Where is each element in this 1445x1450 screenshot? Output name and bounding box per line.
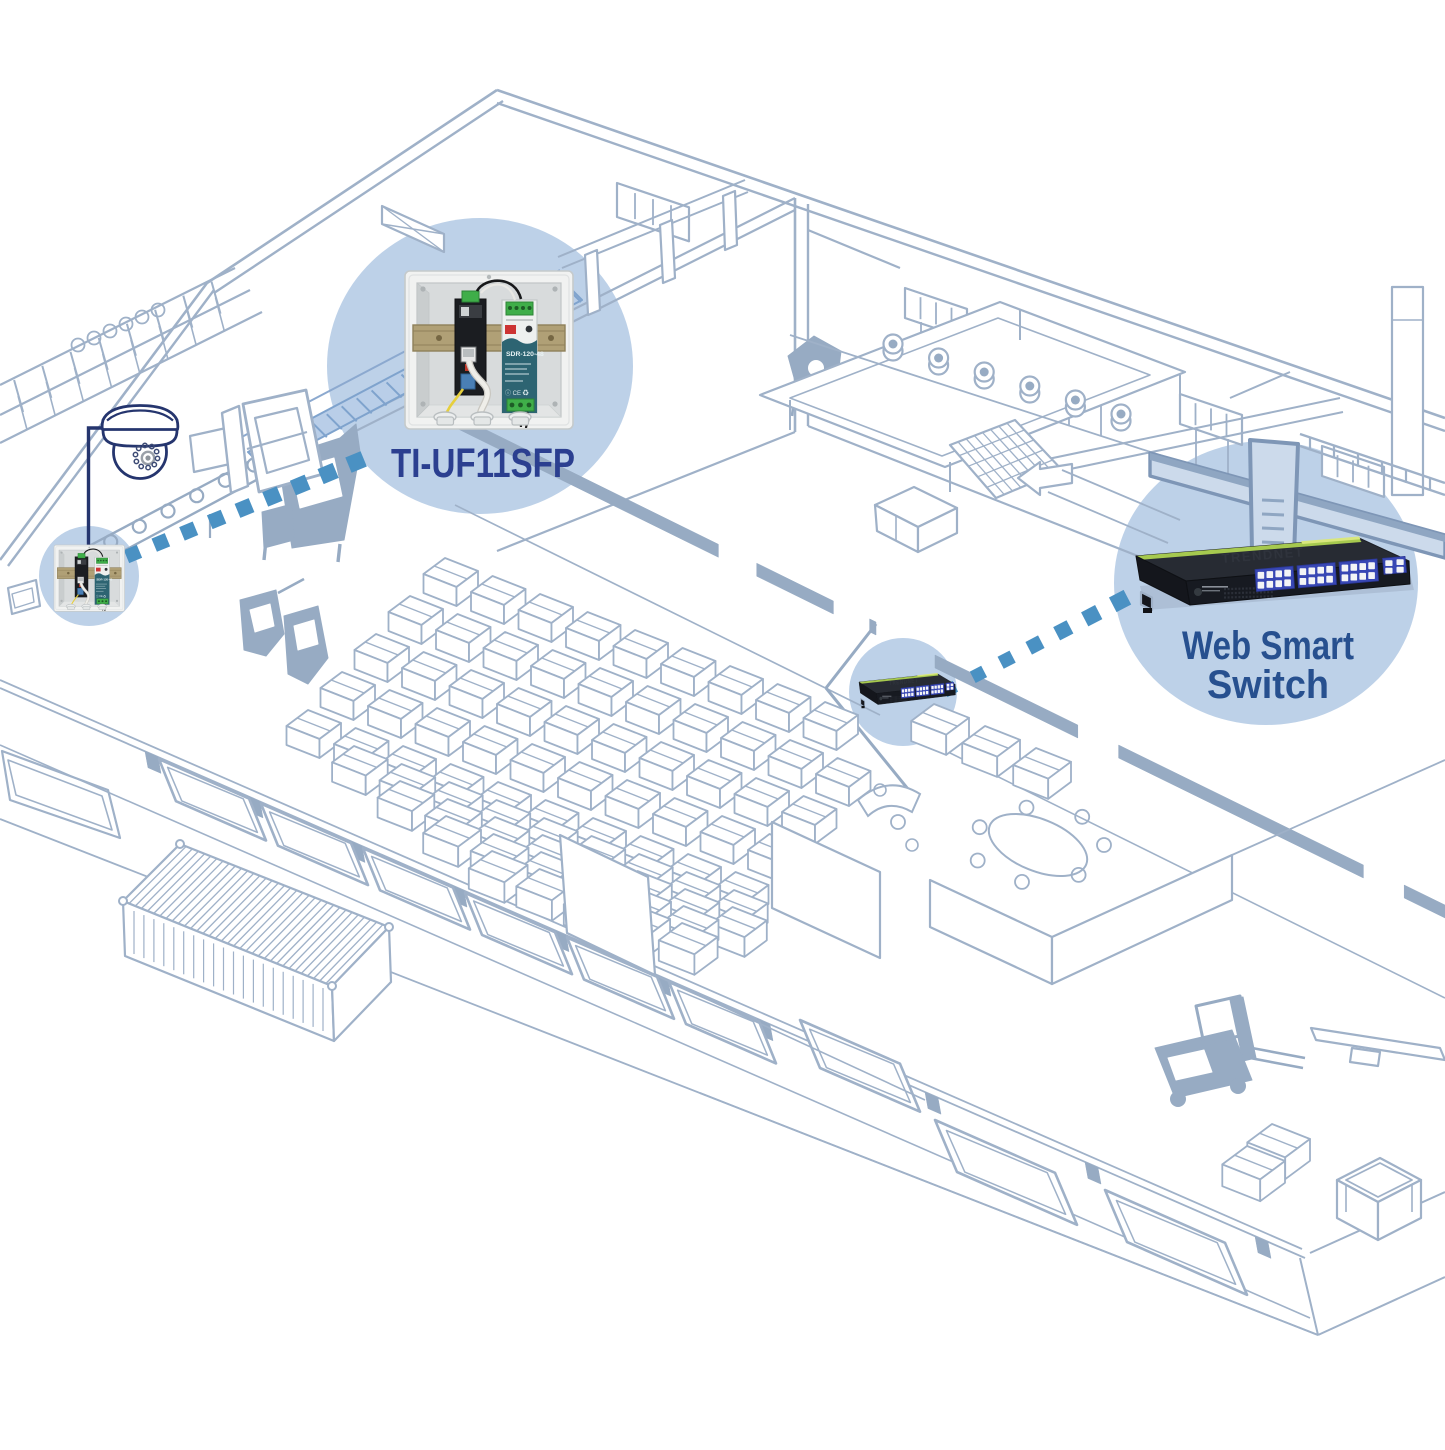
svg-text:TI-UF11SFP: TI-UF11SFP: [391, 440, 575, 486]
svg-text:Web Smart: Web Smart: [1182, 624, 1354, 668]
svg-text:Switch: Switch: [1207, 663, 1329, 707]
